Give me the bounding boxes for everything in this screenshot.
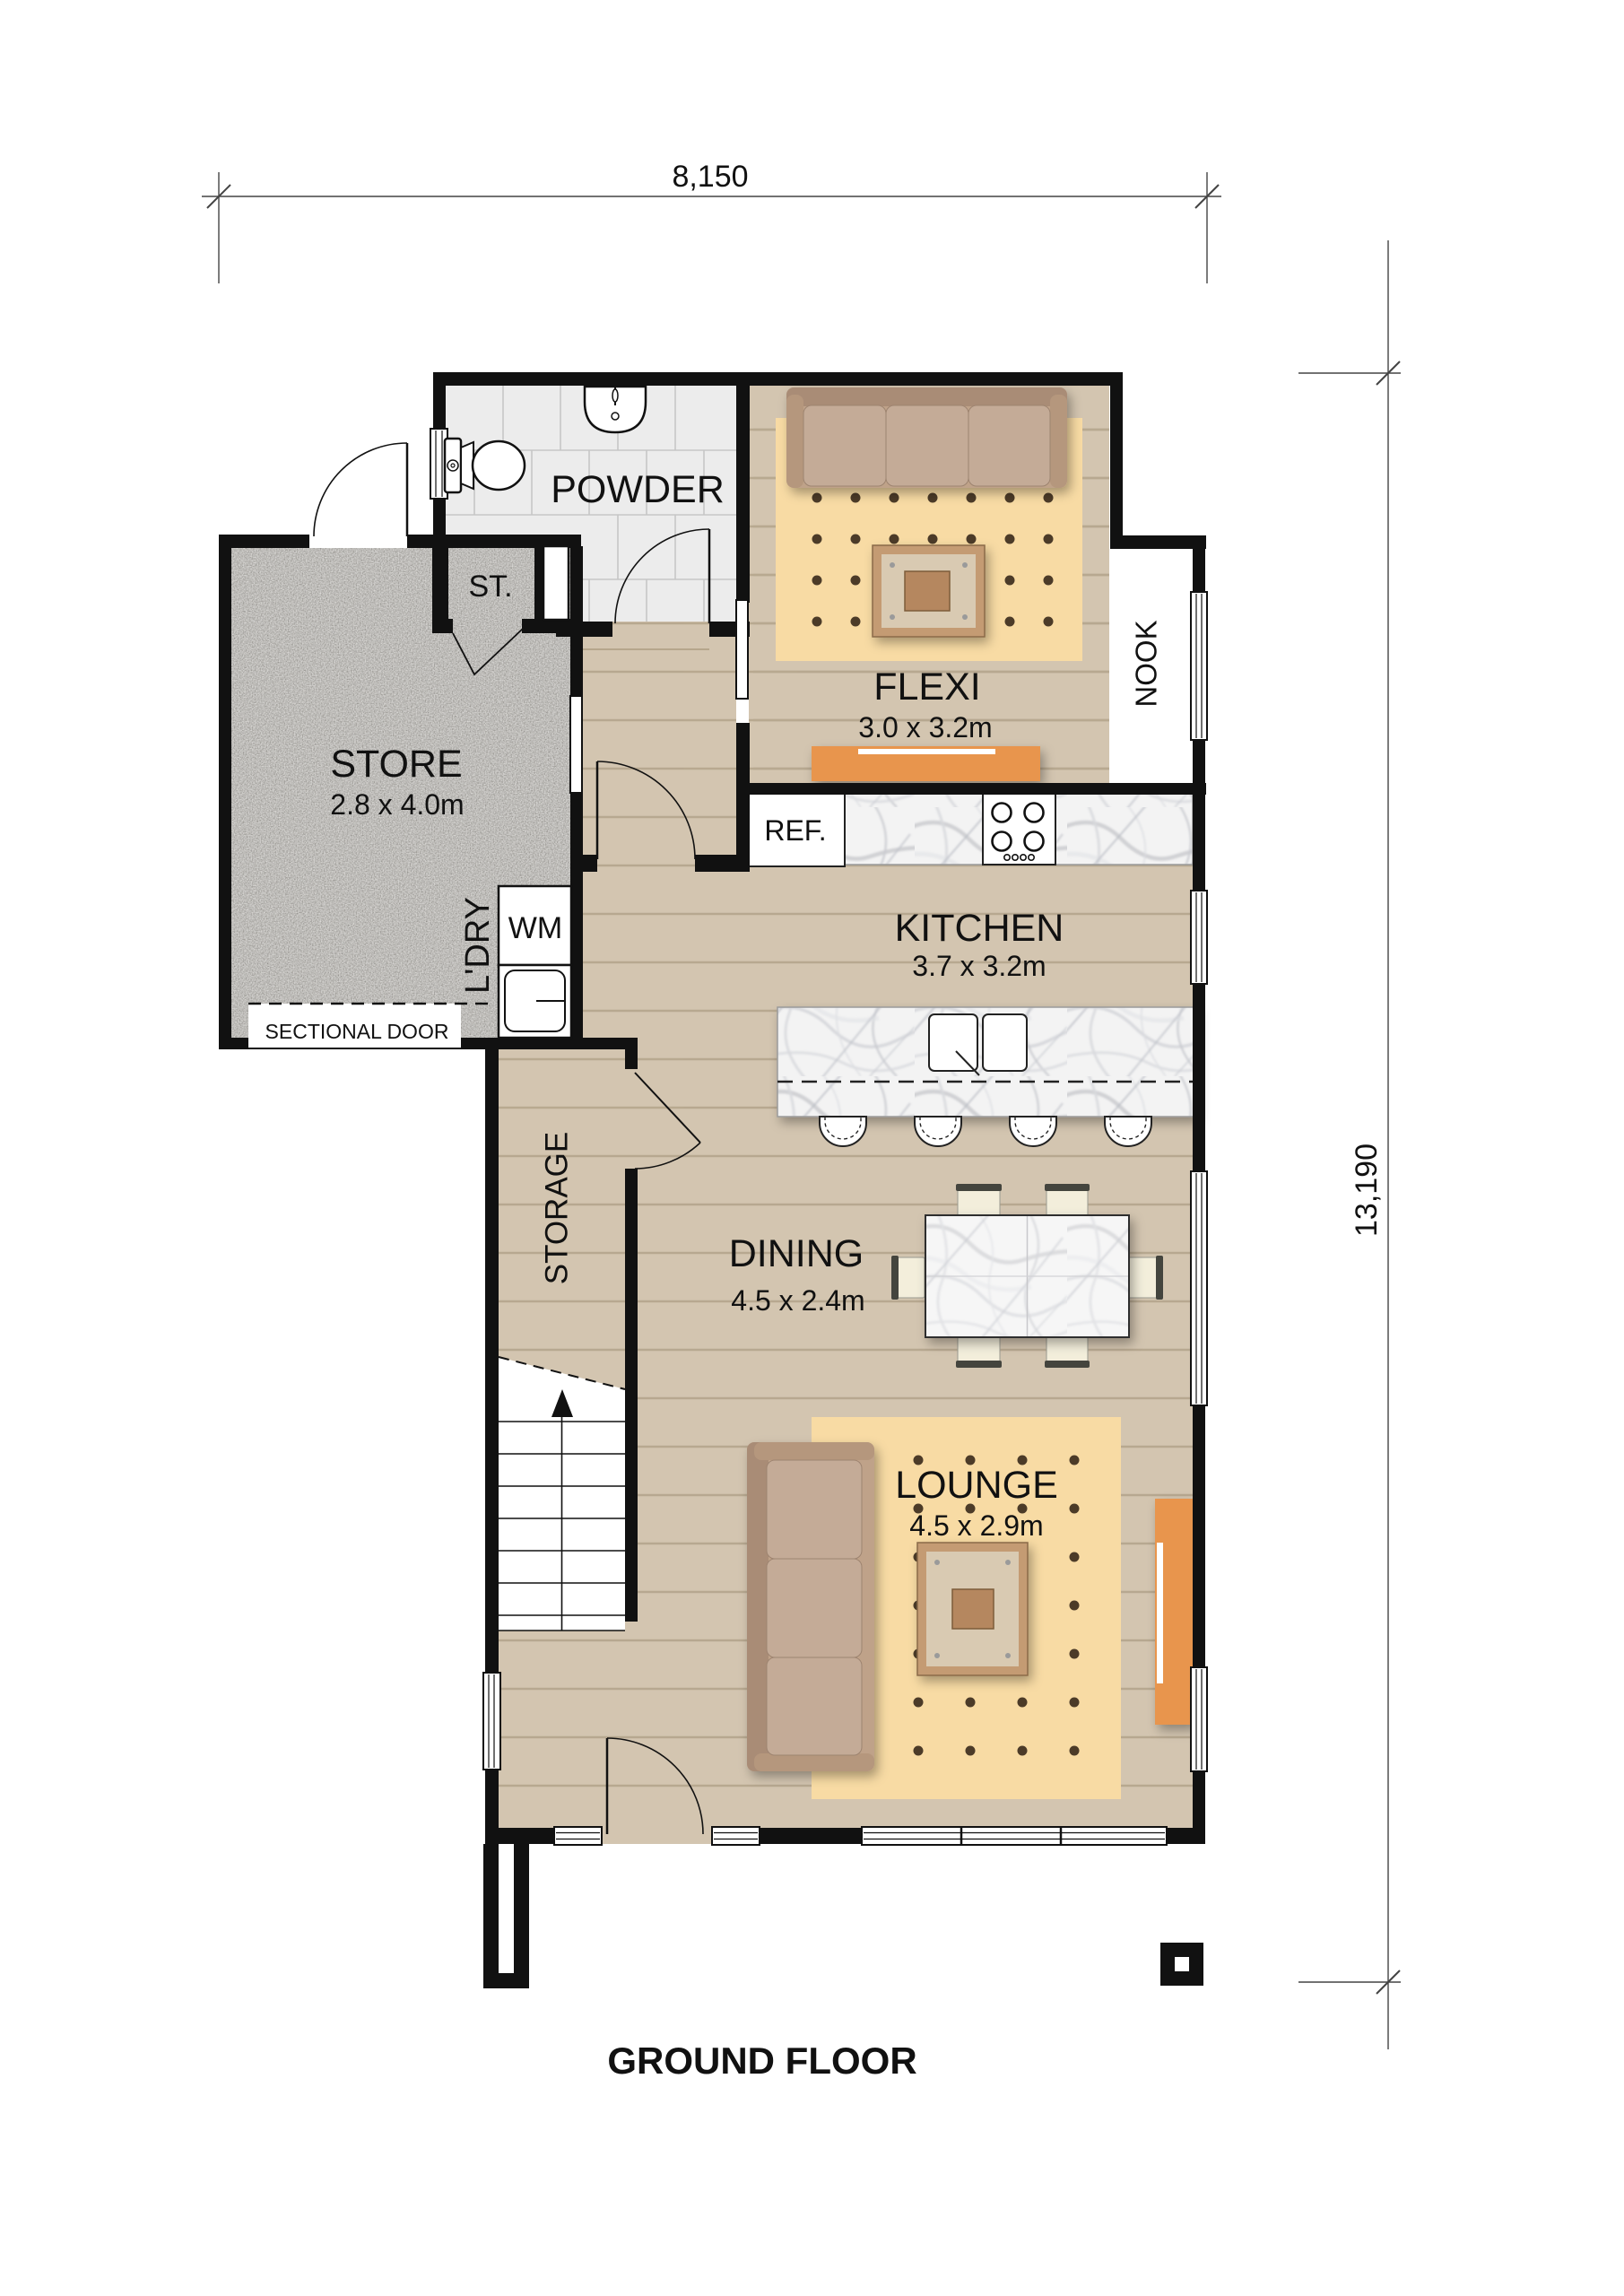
svg-text:2.8 x 4.0m: 2.8 x 4.0m (330, 788, 464, 821)
svg-text:STORAGE: STORAGE (540, 1132, 575, 1285)
svg-text:WM: WM (508, 911, 562, 945)
svg-text:STORE: STORE (330, 743, 462, 786)
svg-text:GROUND FLOOR: GROUND FLOOR (607, 2039, 916, 2082)
svg-text:DINING: DINING (729, 1232, 864, 1275)
svg-text:3.7 x 3.2m: 3.7 x 3.2m (912, 950, 1046, 982)
svg-text:8,150: 8,150 (672, 160, 748, 194)
svg-text:13,190: 13,190 (1350, 1144, 1384, 1237)
svg-text:SECTIONAL DOOR: SECTIONAL DOOR (265, 1020, 449, 1043)
svg-text:L'DRY: L'DRY (459, 897, 497, 994)
svg-text:REF.: REF. (764, 814, 826, 847)
svg-text:ST.: ST. (468, 570, 512, 604)
svg-text:KITCHEN: KITCHEN (895, 907, 1064, 950)
svg-text:NOOK: NOOK (1130, 620, 1163, 707)
svg-text:4.5 x 2.9m: 4.5 x 2.9m (909, 1509, 1043, 1542)
svg-text:LOUNGE: LOUNGE (895, 1464, 1058, 1507)
svg-text:3.0 x 3.2m: 3.0 x 3.2m (858, 711, 992, 744)
svg-text:4.5 x 2.4m: 4.5 x 2.4m (731, 1284, 864, 1317)
svg-text:POWDER: POWDER (551, 468, 725, 511)
svg-text:FLEXI: FLEXI (873, 665, 981, 709)
